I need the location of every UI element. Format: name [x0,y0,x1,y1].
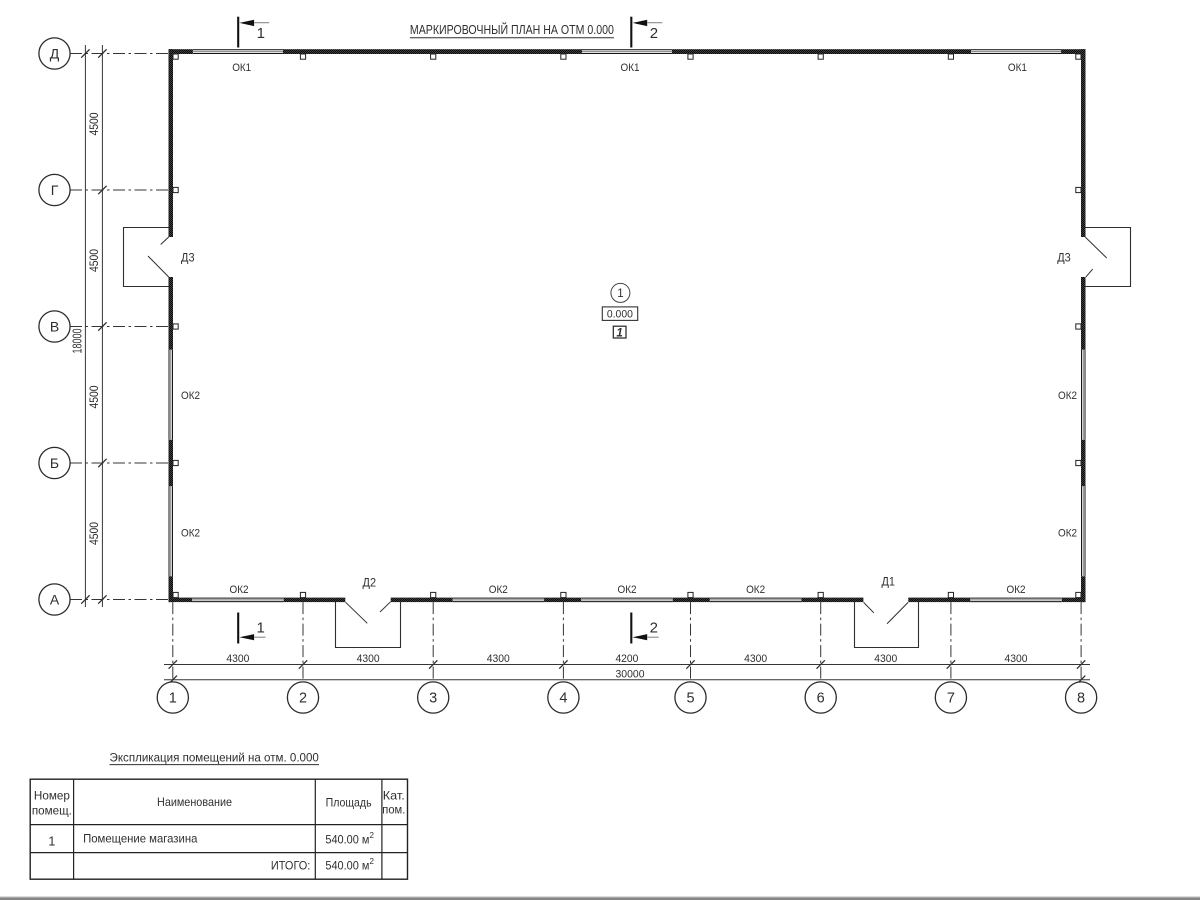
svg-text:ОК2: ОК2 [618,584,637,596]
svg-text:Д3: Д3 [1057,250,1071,264]
svg-text:18000: 18000 [71,328,85,353]
svg-text:4300: 4300 [487,653,510,665]
svg-text:Площадь: Площадь [326,796,372,810]
svg-text:4300: 4300 [874,653,897,665]
svg-text:ИТОГО:: ИТОГО: [271,858,310,872]
svg-text:1: 1 [257,620,265,637]
svg-text:4200: 4200 [615,653,638,665]
svg-text:ОК2: ОК2 [181,527,200,539]
svg-text:Д2: Д2 [363,576,377,590]
svg-text:ОК2: ОК2 [1058,527,1077,539]
svg-text:Д3: Д3 [181,250,195,264]
svg-text:Б: Б [50,455,59,471]
svg-text:540.00 м: 540.00 м [325,858,369,872]
svg-text:Наименование: Наименование [157,795,232,809]
svg-text:Г: Г [51,182,59,198]
svg-text:В: В [50,319,59,335]
svg-text:1: 1 [616,327,622,339]
svg-text:1: 1 [617,288,623,300]
svg-text:ОК2: ОК2 [230,584,249,596]
svg-text:30000: 30000 [616,669,645,681]
svg-text:ОК2: ОК2 [1007,584,1026,596]
svg-text:4500: 4500 [87,522,101,545]
svg-text:2: 2 [650,25,658,42]
svg-text:4: 4 [559,691,567,707]
svg-text:4300: 4300 [744,653,767,665]
svg-text:Д: Д [50,46,60,62]
svg-text:3: 3 [429,691,437,707]
svg-text:2: 2 [370,831,375,840]
svg-text:8: 8 [1077,691,1085,707]
svg-text:МАРКИРОВОЧНЫЙ ПЛАН НА ОТМ 0.00: МАРКИРОВОЧНЫЙ ПЛАН НА ОТМ 0.000 [410,22,614,37]
svg-text:1: 1 [257,25,265,42]
svg-text:4500: 4500 [87,385,101,408]
svg-text:Номер: Номер [34,789,70,803]
svg-text:Экспликация помещений на отм.: Экспликация помещений на отм. 0.000 [110,751,319,765]
svg-text:ОК1: ОК1 [232,62,251,74]
svg-text:ОК2: ОК2 [489,584,508,596]
svg-text:Д1: Д1 [881,575,895,589]
svg-text:А: А [50,592,60,608]
svg-text:4500: 4500 [87,112,101,135]
svg-text:4300: 4300 [357,653,380,665]
svg-text:пом.: пом. [382,803,405,817]
svg-text:1: 1 [169,691,177,707]
svg-text:ОК1: ОК1 [1008,62,1027,74]
svg-text:4500: 4500 [87,249,101,272]
svg-text:540.00 м: 540.00 м [325,833,369,847]
svg-text:7: 7 [947,691,955,707]
svg-text:6: 6 [817,691,825,707]
svg-text:ОК2: ОК2 [181,390,200,402]
svg-text:ОК2: ОК2 [1058,390,1077,402]
svg-text:Кат.: Кат. [383,789,405,803]
svg-text:2: 2 [650,620,658,637]
svg-text:5: 5 [686,691,694,707]
svg-text:ОК2: ОК2 [746,584,765,596]
svg-text:4300: 4300 [226,653,249,665]
svg-text:1: 1 [48,834,55,848]
svg-text:ОК1: ОК1 [621,62,640,74]
svg-text:помещ.: помещ. [32,804,72,818]
svg-text:0.000: 0.000 [607,308,633,320]
svg-text:Помещение магазина: Помещение магазина [83,831,198,845]
svg-text:2: 2 [299,691,307,707]
svg-text:4300: 4300 [1005,653,1028,665]
svg-text:2: 2 [370,857,375,866]
